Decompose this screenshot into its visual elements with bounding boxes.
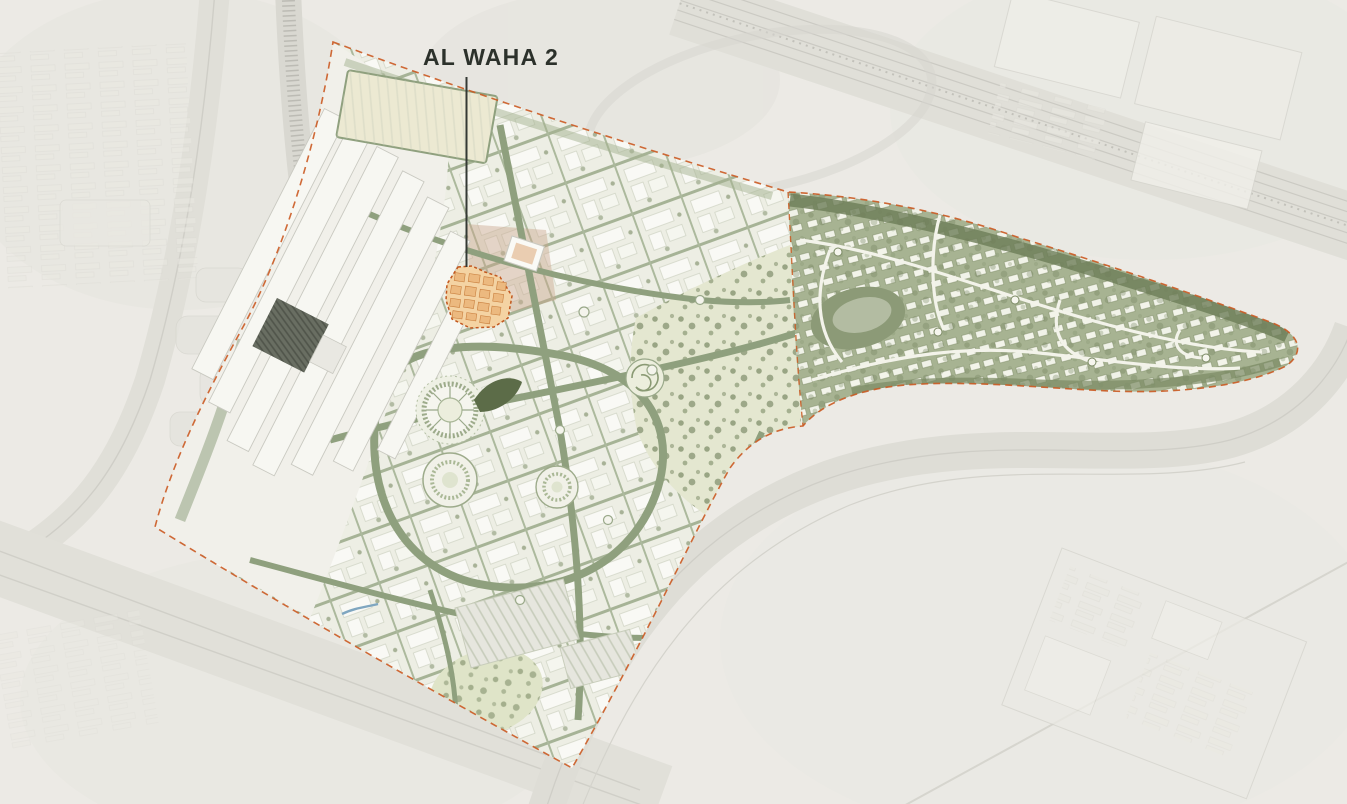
garden-dome-south [423,453,477,507]
context-industrial-rows-northwest [0,43,198,289]
spiral-garden [626,359,664,397]
masterplan-map: AL WAHA 2 [0,0,1347,804]
district-label[interactable]: AL WAHA 2 [423,44,559,71]
map-canvas [0,0,1347,804]
garden-dome-east [536,466,578,508]
